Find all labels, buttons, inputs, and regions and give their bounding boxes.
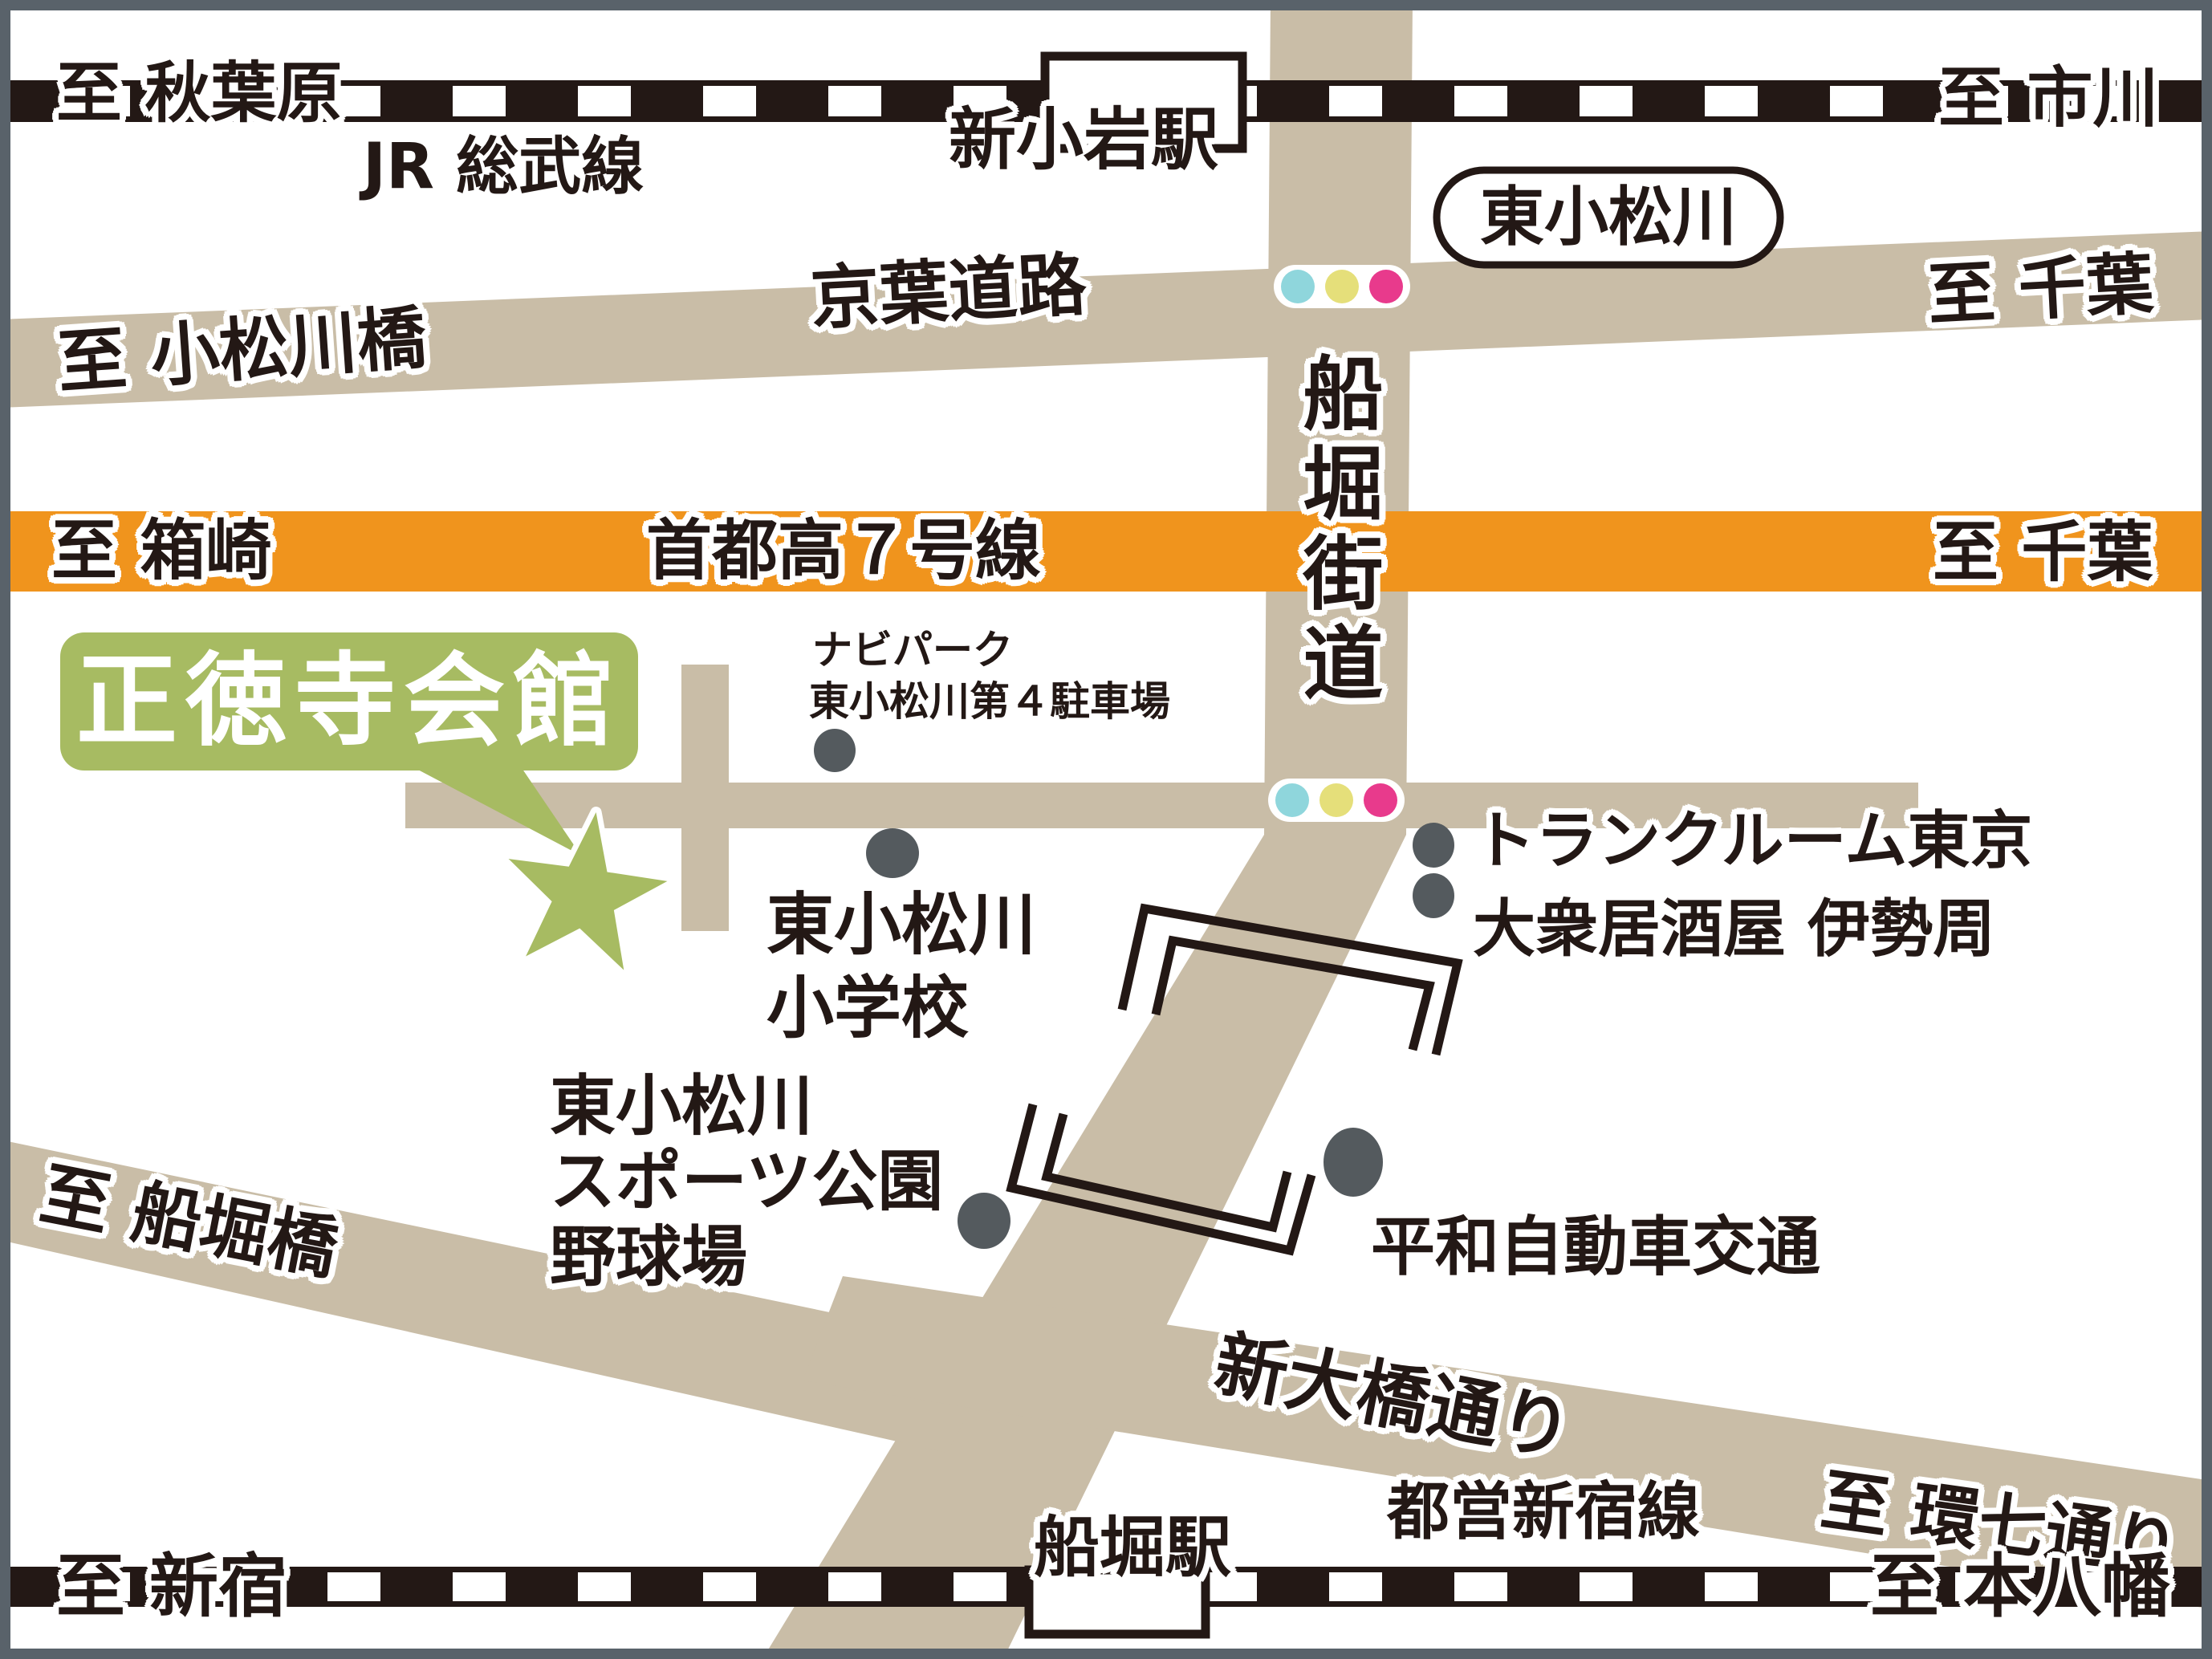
label-toei-shinjuku-line: 都営新宿線	[1387, 1480, 1700, 1546]
label-funabori-kaido: 船堀街道	[1294, 352, 1378, 711]
marker-dot-icon	[814, 729, 856, 772]
label-heiwa-taxi: 平和自動車交通	[1371, 1214, 1820, 1281]
label-keiyo-road: 京葉道路	[809, 249, 1088, 335]
marker-dot-icon	[1413, 823, 1454, 868]
label-jr-sobu-line: JR 総武線	[363, 135, 644, 201]
label-sports-park-line1: 東小松川	[550, 1072, 813, 1141]
label-izakaya-iseshu: 大衆居酒屋 伊勢周	[1473, 897, 1995, 963]
label-to-ichikawa: 至 市川	[1938, 64, 2159, 133]
marker-dot-icon	[1413, 873, 1454, 918]
label-to-shinjuku: 至 新宿	[56, 1551, 287, 1623]
label-venue-shotokuji-kaikan: 正徳寺会館	[60, 632, 638, 771]
label-school-line2: 小学校	[766, 973, 969, 1043]
label-to-hakozaki: 至 箱崎	[51, 517, 272, 586]
marker-dot-icon	[866, 828, 919, 878]
label-sports-park-line3: 野球場	[550, 1223, 747, 1292]
marker-dot-icon	[1324, 1128, 1383, 1197]
label-shinkoiwa-station: 新小岩駅	[949, 104, 1218, 175]
label-trunk-room-tokyo: トランクルーム東京	[1473, 809, 2032, 875]
label-shutoko-7: 首都高７号線	[646, 517, 1041, 586]
label-to-chiba-shutoko: 至 千葉	[1933, 518, 2153, 588]
road-stub	[681, 665, 729, 931]
label-to-motoyawata: 至 本八幡	[1870, 1551, 2170, 1623]
marker-dot-icon	[958, 1193, 1010, 1249]
label-funabori-station: 船堀駅	[1034, 1514, 1231, 1583]
label-sports-park-line2: スポーツ公園	[550, 1148, 943, 1217]
label-parking-line2: 東小松川第４駐車場	[809, 681, 1170, 723]
label-bus-stop-higashikomatsugawa: 東小松川	[1437, 170, 1780, 265]
label-school-line1: 東小松川	[766, 889, 1036, 960]
label-to-akihabara: 至 秋葉原	[56, 59, 343, 128]
label-parking-line1: ナビパーク	[812, 629, 1013, 672]
label-to-chiba-keiyo: 至 千葉	[1926, 248, 2155, 331]
traffic-light-icon	[1268, 779, 1405, 822]
traffic-light-icon	[1274, 265, 1410, 308]
road-shutoko-7	[10, 511, 2202, 592]
access-map: 至 秋葉原 JR 総武線 新小岩駅 至 市川 東小松川 京葉道路 至 小松川橋 …	[0, 0, 2212, 1659]
